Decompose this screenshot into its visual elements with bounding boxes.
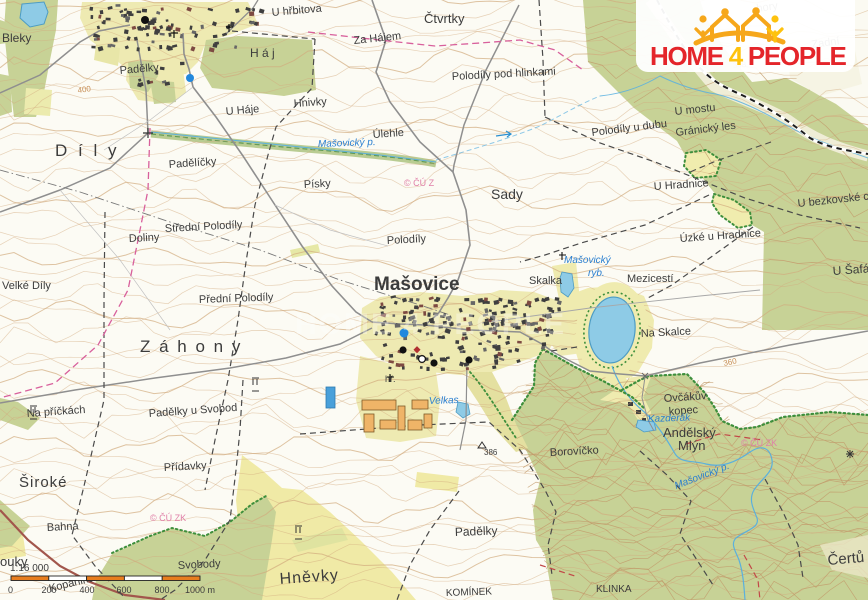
- svg-text:Skalka: Skalka: [529, 275, 563, 287]
- svg-text:© ČÚ ZK: © ČÚ ZK: [150, 513, 186, 523]
- svg-text:© ČÚ Z: © ČÚ Z: [404, 178, 435, 188]
- svg-text:ryb.: ryb.: [588, 268, 605, 279]
- svg-text:Velkas: Velkas: [429, 395, 459, 407]
- svg-text:200: 200: [41, 585, 56, 595]
- svg-text:1:16 000: 1:16 000: [10, 563, 49, 574]
- svg-text:Mašovický: Mašovický: [564, 255, 612, 266]
- svg-text:D í l y: D í l y: [55, 141, 119, 160]
- svg-text:Písky: Písky: [304, 178, 332, 191]
- svg-text:1000 m: 1000 m: [185, 585, 215, 595]
- svg-text:© ČÚ ZK: © ČÚ ZK: [741, 438, 777, 448]
- svg-text:Široké: Široké: [19, 474, 68, 491]
- svg-text:400: 400: [79, 585, 94, 595]
- svg-text:HOME 4 PEOPLE: HOME 4 PEOPLE: [295, 308, 566, 341]
- svg-text:Polodíly: Polodíly: [387, 233, 427, 247]
- svg-text:Mašovice: Mašovice: [374, 274, 460, 295]
- svg-text:Doliny: Doliny: [129, 231, 161, 245]
- svg-text:U Šafá: U Šafá: [832, 260, 868, 278]
- svg-text:Sady: Sady: [491, 186, 523, 202]
- svg-text:Přídavky: Přídavky: [164, 460, 208, 474]
- svg-text:Borovíčko: Borovíčko: [550, 444, 599, 459]
- svg-text:600: 600: [116, 585, 131, 595]
- svg-text:386: 386: [484, 448, 498, 457]
- svg-text:Čtvrtky: Čtvrtky: [424, 11, 465, 26]
- svg-text:Úlehle: Úlehle: [372, 126, 404, 141]
- svg-text:Mezicestí: Mezicestí: [627, 273, 673, 285]
- svg-text:Padělky: Padělky: [455, 524, 498, 539]
- svg-text:hř.: hř.: [385, 374, 396, 384]
- svg-text:HOME 4 PEOPLE: HOME 4 PEOPLE: [650, 41, 846, 71]
- svg-text:H á j: H á j: [250, 46, 275, 60]
- svg-text:Velké Díly: Velké Díly: [2, 280, 51, 292]
- svg-text:Mlýn: Mlýn: [678, 438, 705, 453]
- svg-text:Čertů: Čertů: [827, 549, 865, 569]
- svg-text:Bahna: Bahna: [47, 520, 80, 534]
- svg-text:400: 400: [77, 84, 92, 95]
- svg-text:Mašovický p.: Mašovický p.: [318, 137, 376, 150]
- svg-text:0: 0: [8, 585, 13, 595]
- svg-text:Hnivky: Hnivky: [293, 96, 327, 110]
- svg-text:KLINKA: KLINKA: [596, 584, 632, 595]
- svg-text:Svobody: Svobody: [178, 558, 222, 572]
- svg-text:Bleky: Bleky: [2, 31, 31, 45]
- svg-text:Z á h o n y: Z á h o n y: [140, 337, 242, 356]
- svg-text:800: 800: [154, 585, 169, 595]
- svg-text:Kazderák: Kazderák: [648, 412, 692, 425]
